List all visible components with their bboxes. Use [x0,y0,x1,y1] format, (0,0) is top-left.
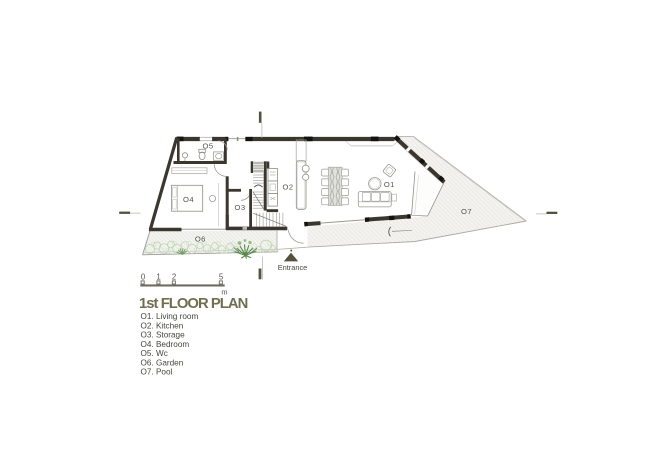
svg-text:O6: O6 [195,235,206,244]
svg-text:O7: O7 [461,207,472,216]
svg-text:O1. Living room: O1. Living room [141,312,199,321]
svg-text:O2: O2 [283,183,294,192]
svg-text:0: 0 [141,273,146,282]
svg-text:O7. Pool: O7. Pool [141,368,173,377]
svg-text:O3: O3 [235,203,246,212]
svg-text:O5. Wc: O5. Wc [141,349,168,358]
svg-text:O4. Bedroom: O4. Bedroom [141,340,190,349]
svg-text:O5: O5 [203,141,214,150]
svg-text:O6. Garden: O6. Garden [141,358,184,367]
svg-text:1: 1 [156,273,160,282]
svg-text:O3. Storage: O3. Storage [141,331,186,340]
svg-text:2: 2 [172,273,176,282]
svg-text:O2. Kitchen: O2. Kitchen [141,321,184,330]
svg-text:O4: O4 [183,195,194,204]
svg-text:Entrance: Entrance [278,263,308,272]
svg-text:O1: O1 [384,180,395,189]
svg-text:5: 5 [219,273,224,282]
svg-text:1st FLOOR PLAN: 1st FLOOR PLAN [139,296,248,312]
